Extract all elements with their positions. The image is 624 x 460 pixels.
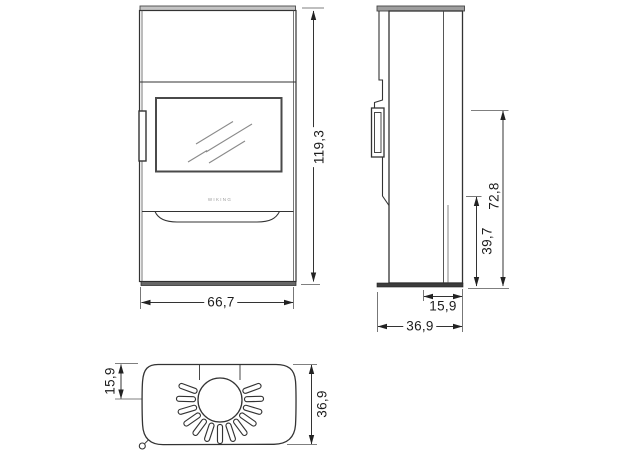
dim-side-height-lower: 39,7 [480, 227, 494, 254]
side-handle-bracket [372, 108, 385, 157]
dim-front-width: 66,7 [204, 295, 237, 309]
dim-side-depth: 36,9 [403, 319, 436, 333]
damper-pull-knob [139, 443, 145, 449]
dim-top-depth: 36,9 [315, 390, 329, 417]
front-door-handle [139, 111, 146, 161]
front-view-drawing [139, 6, 296, 286]
brand-logo-text: WIKING [208, 198, 232, 203]
dim-side-rear-offset: 15,9 [429, 299, 456, 313]
front-base-plate [141, 282, 296, 286]
side-base-plate [377, 283, 463, 287]
side-view-drawing [372, 6, 465, 287]
dim-top-flue-offset: 15,9 [103, 367, 117, 394]
flue-collar [198, 378, 242, 422]
top-view-drawing [139, 365, 296, 450]
dim-side-height-upper: 72,8 [487, 182, 501, 209]
dim-front-height: 119,3 [312, 127, 326, 167]
stove-technical-drawing: 119,3 66,7 15,9 36,9 39,7 72,8 15,9 36,9… [0, 0, 624, 460]
drawing-linework [0, 0, 624, 460]
